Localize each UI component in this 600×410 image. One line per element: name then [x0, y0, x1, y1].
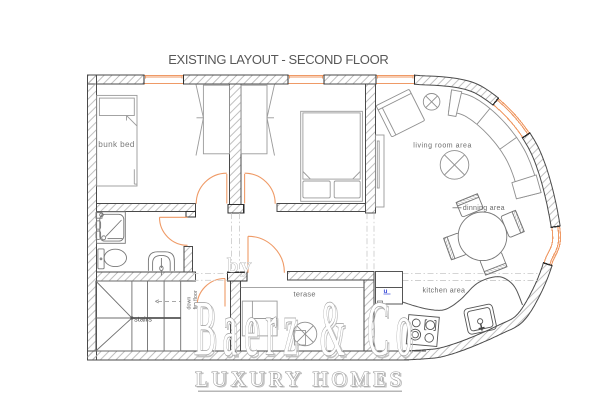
- svg-text:by: by: [227, 254, 253, 277]
- svg-text:living room area: living room area: [413, 143, 472, 150]
- svg-text:kitchen area: kitchen area: [423, 287, 466, 295]
- svg-text:stairs: stairs: [134, 315, 152, 324]
- svg-text:EXISTING LAYOUT - SECOND FLOOR: EXISTING LAYOUT - SECOND FLOOR: [168, 52, 388, 67]
- svg-text:down: down: [187, 297, 193, 310]
- svg-text:bunk bed: bunk bed: [98, 140, 135, 149]
- svg-text:LUXURY HOMES: LUXURY HOMES: [195, 367, 405, 391]
- svg-text:Baerz & Co: Baerz & Co: [194, 285, 419, 371]
- svg-text:dinning area: dinning area: [463, 204, 505, 212]
